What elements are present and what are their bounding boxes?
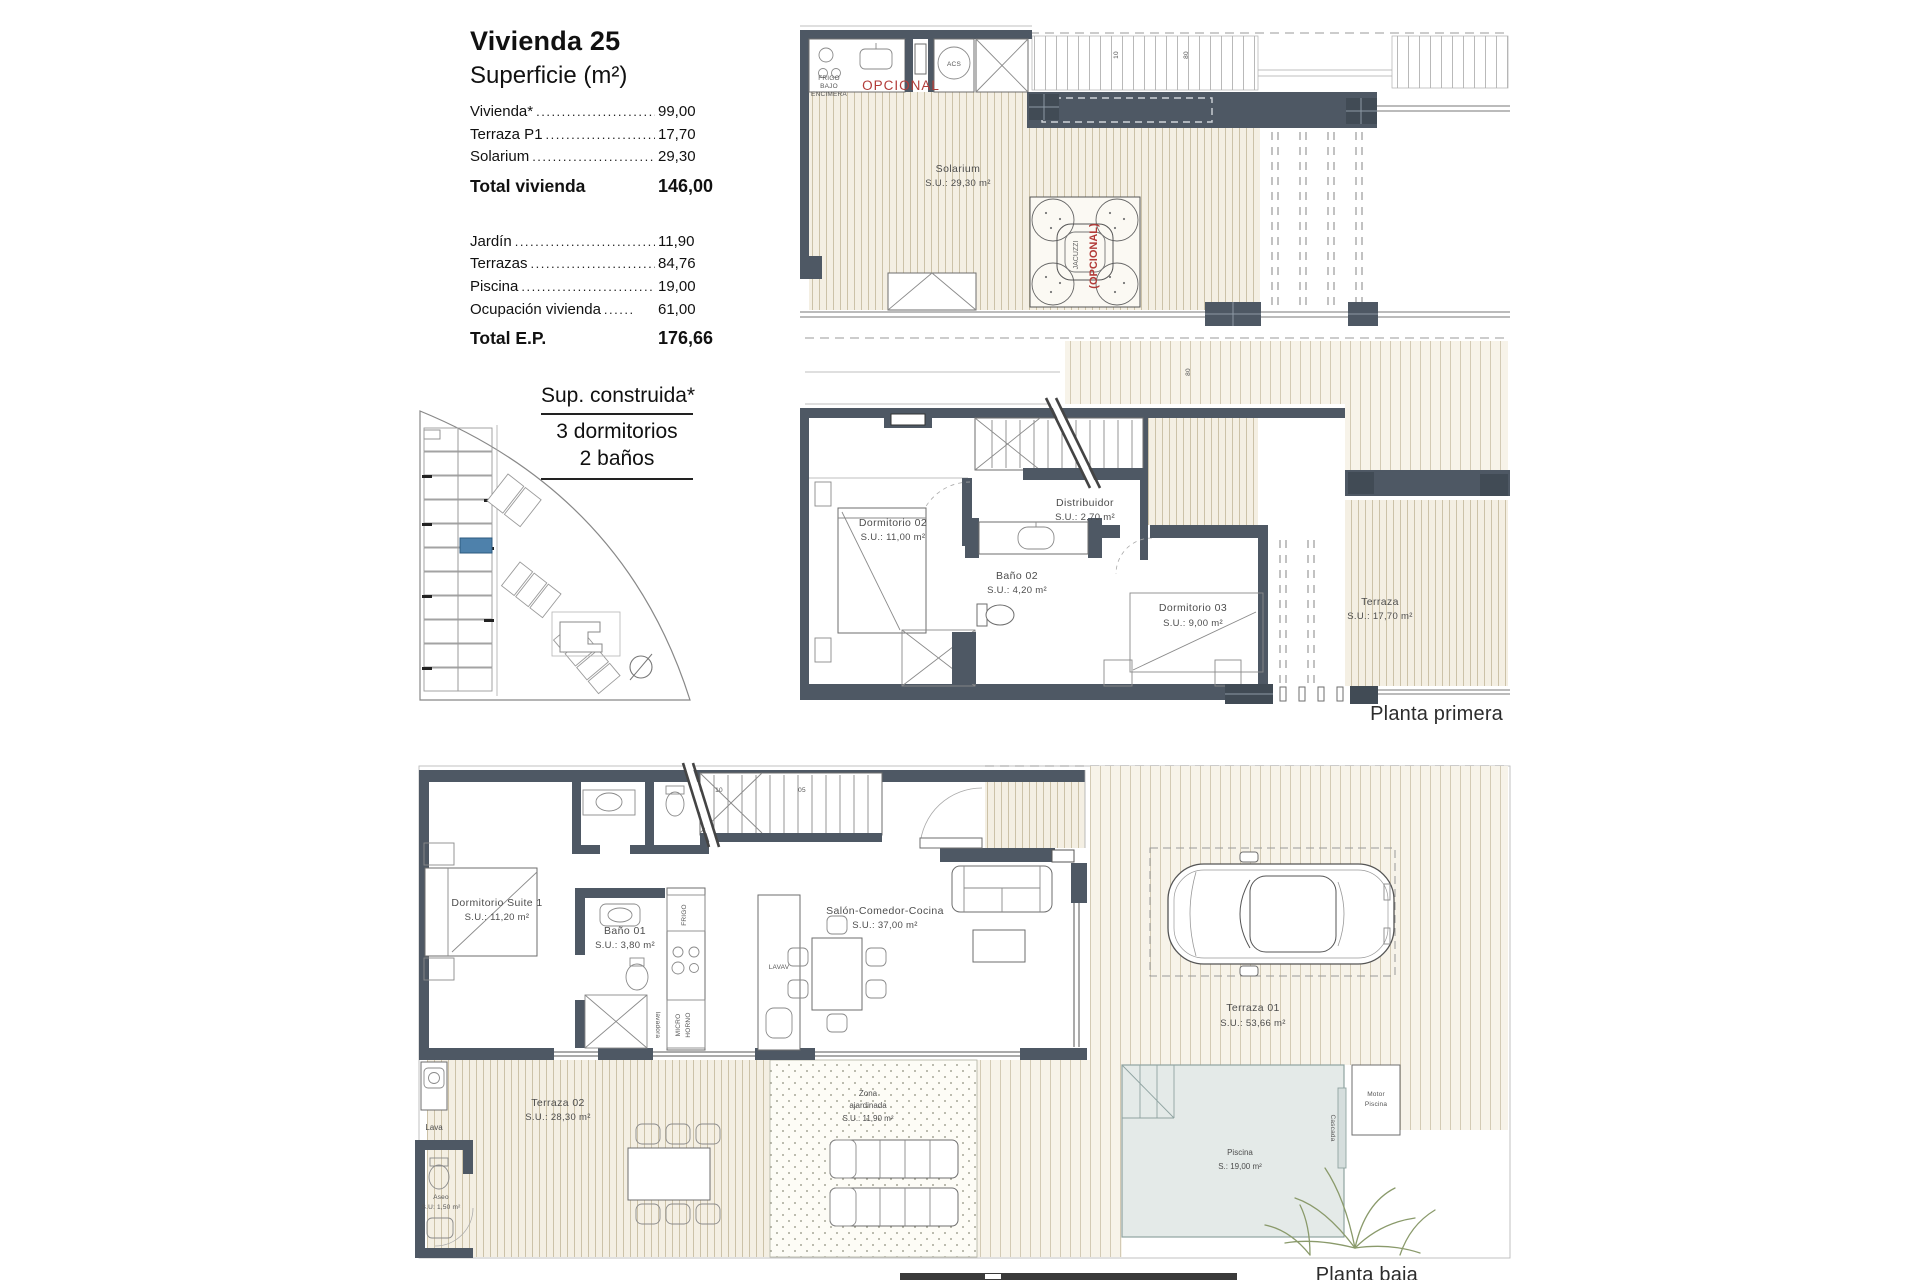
room-area: S.U.: 9,00 m²: [1163, 618, 1223, 629]
post: [1348, 472, 1374, 494]
room-label: Terraza 01: [1226, 1002, 1280, 1014]
stair-number: 10: [715, 787, 723, 794]
bano02: Baño 02 S.U.: 4,20 m²: [902, 518, 1102, 686]
plan-baja: Dormitorio Suite 1 S.U.: 11,20 m² Baño 0…: [415, 763, 1510, 1280]
room-label: Solarium: [936, 163, 981, 175]
pool-label: Piscina: [1227, 1148, 1253, 1157]
lava-label: Lava: [425, 1123, 443, 1132]
room-area: S.U.: 37,00 m²: [852, 920, 917, 931]
plan-primera: 80 Dormitorio 02 S.U.: 11,00 m²: [800, 338, 1510, 725]
dim-text: 80: [1185, 368, 1192, 376]
jacuzzi-opcional-label: (OPCIONAL): [1088, 223, 1100, 289]
chair: [827, 1014, 847, 1032]
stair-number: 05: [798, 787, 806, 794]
lavav-label: LAVAV: [769, 964, 790, 971]
suite: Dormitorio Suite 1 S.U.: 11,20 m²: [424, 843, 543, 980]
wall: [800, 30, 1032, 39]
room-label: Dormitorio Suite 1: [451, 897, 542, 909]
room-area: S.U: 1,50 m²: [422, 1204, 462, 1211]
room-area: S.U.: 17,70 m²: [1347, 611, 1412, 622]
lavadora-label: lavadora: [654, 1012, 661, 1039]
upper-deck: [1148, 418, 1258, 525]
opcional-label: OPCIONAL: [862, 78, 940, 93]
side-deck: [1398, 1060, 1508, 1130]
wall: [1071, 863, 1087, 903]
horno-label: HORNO: [685, 1012, 692, 1037]
hall-bath-strip: [572, 782, 709, 854]
room-area: S.U.: 11,00 m²: [861, 532, 926, 543]
wall: [800, 418, 809, 690]
terraza-deck: [1345, 500, 1508, 686]
room-label: Salón-Comedor-Cocina: [826, 905, 944, 917]
chair: [827, 916, 847, 934]
terraza-p1-dashes: [1280, 540, 1314, 684]
room-label: Baño 02: [996, 570, 1038, 582]
open-terrace-dashes: [1272, 132, 1362, 305]
wall: [1100, 525, 1120, 538]
stair-skylight: [888, 273, 976, 310]
sink-icon: [596, 793, 622, 811]
frigo-label: FRIGO: [818, 75, 840, 82]
floorplan-canvas: 10 80 ACS FRIGO BAJO ENCIMERA OPCIONAL S…: [0, 0, 1920, 1280]
micro-label: MICRO: [675, 1014, 682, 1037]
jacuzzi: JACUZZI (OPCIONAL): [1030, 197, 1140, 307]
post: [800, 256, 822, 279]
dining-table: [812, 938, 862, 1010]
deck-ticks: [1280, 687, 1343, 701]
kitchen-column: FRIGO MICRO HORNO: [667, 888, 705, 1050]
plan-label-baja: Planta baja: [1316, 1264, 1419, 1280]
coffee-table: [973, 930, 1025, 962]
dorm02: Dormitorio 02 S.U.: 11,00 m²: [815, 482, 927, 662]
frigo-label: BAJO: [820, 83, 838, 90]
wall: [1020, 1048, 1087, 1060]
room-area: S.U.: 29,30 m²: [925, 178, 990, 189]
car-cabin: [1250, 876, 1336, 952]
toilet-icon: [986, 605, 1014, 625]
room-label: Dormitorio 03: [1159, 602, 1227, 614]
room-label: Baño 01: [604, 925, 646, 937]
site-plan: [420, 411, 690, 700]
pool: Piscina S.: 19,00 m² Cascada: [1122, 1065, 1346, 1237]
room-area: S.U.: 2,70 m²: [1055, 512, 1115, 523]
toilet-icon: [666, 792, 684, 816]
toilet-tank: [666, 786, 684, 794]
sink-icon: [608, 908, 632, 922]
wall: [940, 848, 1055, 862]
room-area: S.U.: 4,20 m²: [987, 585, 1047, 596]
mirror: [1240, 852, 1258, 862]
wall: [800, 684, 1270, 700]
garden-label: Zona: [859, 1089, 878, 1098]
cascada-wall: [1338, 1088, 1346, 1168]
terraza02-deck: [427, 1060, 770, 1257]
frigo-label: ENCIMERA: [811, 91, 847, 98]
plan-label-primera: Planta primera: [1370, 703, 1504, 725]
room-label: Terraza 02: [531, 1097, 585, 1109]
stair-slats: [1392, 36, 1508, 88]
post: [1350, 686, 1378, 704]
kitchen-island: [758, 895, 800, 1050]
door-arc: [920, 788, 982, 846]
dim-text: 80: [1183, 51, 1190, 59]
pergola-slats: [1032, 36, 1258, 90]
jacuzzi-label: JACUZZI: [1073, 241, 1080, 270]
window: [1052, 850, 1074, 862]
roof-slats: [1065, 341, 1345, 404]
motor-label: Piscina: [1365, 1101, 1388, 1108]
wall: [1150, 525, 1258, 538]
post: [1480, 474, 1508, 496]
toilet-icon: [626, 964, 648, 990]
room-label: Distribuidor: [1056, 497, 1114, 509]
room-area: S.U.: 53,66 m²: [1220, 1018, 1285, 1029]
outdoor-table: [628, 1148, 710, 1200]
room-label: Aseo: [433, 1194, 449, 1201]
room-area: S.U.: 11,20 m²: [465, 912, 530, 923]
door-leaf: [915, 44, 926, 74]
scale-bar: [900, 1273, 1237, 1280]
window: [891, 414, 925, 425]
room-area: S.U.: 28,30 m²: [525, 1112, 590, 1123]
dim-text: 10: [1113, 51, 1120, 59]
frigo-label: FRIGO: [681, 904, 688, 926]
acs-label: ACS: [947, 61, 961, 68]
room-label: Terraza: [1361, 596, 1399, 608]
chair: [866, 948, 886, 966]
plan-solarium: 10 80 ACS FRIGO BAJO ENCIMERA OPCIONAL S…: [800, 26, 1510, 362]
terraza01-deck: [977, 1060, 1122, 1257]
roof-slats: [1345, 341, 1508, 470]
pool-area: S.: 19,00 m²: [1218, 1162, 1262, 1171]
scale-bar-notch: [985, 1274, 1001, 1279]
room-area: S.U.: 3,80 m²: [595, 940, 655, 951]
wall: [598, 1048, 653, 1060]
motor-label: Motor: [1367, 1091, 1385, 1098]
cascada-label: Cascada: [1329, 1114, 1336, 1141]
salon: LAVAV Salón-Comedor-Cocina S.U.: 37,00 m…: [758, 866, 1052, 1050]
pool-motor: Motor Piscina: [1352, 1065, 1400, 1135]
garden-label: ajardinada: [849, 1101, 887, 1110]
threshold: [920, 838, 982, 848]
wall: [800, 408, 1345, 418]
stairs-lower: 10 05: [683, 763, 882, 847]
wall: [800, 39, 809, 279]
chair: [866, 980, 886, 998]
room-label: Dormitorio 02: [859, 517, 927, 529]
bano01: Baño 01 S.U.: 3,80 m² lavadora: [575, 888, 665, 1048]
garden-area: S.U.: 11,90 m²: [843, 1114, 894, 1123]
highlighted-unit-25: [460, 538, 492, 553]
mirror: [1240, 966, 1258, 976]
dorm03: Dormitorio 03 S.U.: 9,00 m²: [1104, 593, 1263, 686]
wall: [419, 1048, 554, 1060]
